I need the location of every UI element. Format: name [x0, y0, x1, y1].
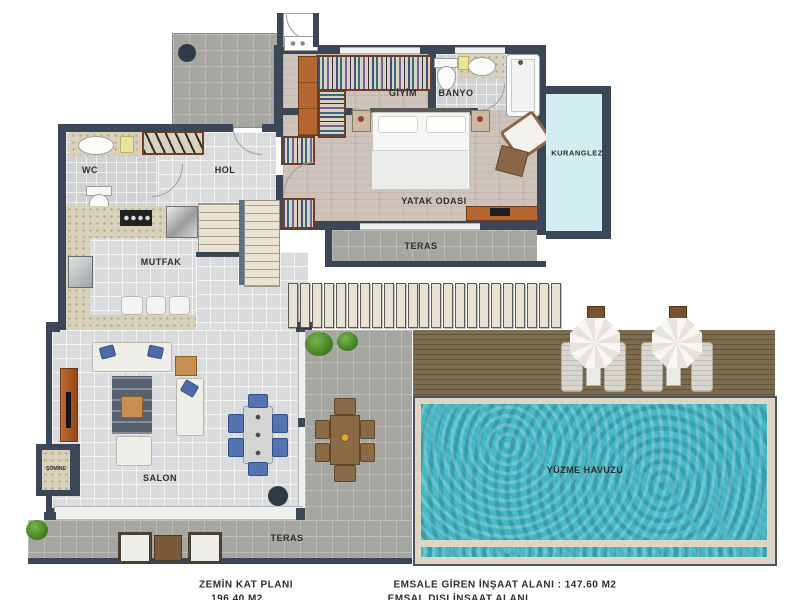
outdoor-chair-r1 — [360, 420, 375, 439]
label-banyo: BANYO — [438, 88, 473, 98]
bedroom-wardrobe-a — [281, 136, 315, 165]
teras-armchair-1 — [118, 532, 152, 564]
dining-chair-r2 — [272, 438, 288, 457]
dining-chair-l1 — [228, 414, 244, 433]
label-yatak-odasi: YATAK ODASI — [401, 196, 466, 206]
shoe-rack — [142, 131, 204, 155]
pergola-slat — [324, 283, 334, 328]
pool-overflow-channel — [421, 547, 767, 557]
window-banyo-top — [455, 47, 505, 54]
pergola-slat — [539, 283, 549, 328]
dining-chair-r1 — [272, 414, 288, 433]
kuranglez-wall-right — [602, 86, 611, 239]
label-teras-ust: TERAS — [404, 241, 437, 251]
floor-plan: WC HOL MUTFAK SALON GİYİM BANYO YATAK OD… — [0, 0, 800, 600]
bush-terrace-2 — [337, 332, 358, 351]
desk-laptop — [490, 208, 510, 216]
bush-bottom-left — [26, 520, 48, 540]
outdoor-chair-l2 — [315, 443, 330, 462]
dining-chair-l2 — [228, 438, 244, 457]
label-hol: HOL — [215, 165, 236, 175]
label-salon: SALON — [143, 473, 177, 483]
outdoor-chair-top — [334, 398, 356, 415]
pergola-slat — [384, 283, 394, 328]
label-somine: ŞÖMİNE — [46, 466, 66, 472]
footer-plan-area: 196.40 M2 — [211, 594, 263, 600]
porch-stub-right — [313, 13, 319, 47]
lamp-right — [477, 116, 483, 122]
pergola-slat — [491, 283, 501, 328]
pergola-slat — [419, 283, 429, 328]
pergola-slat — [515, 283, 525, 328]
umbrella-1-cap — [587, 306, 605, 319]
stair-flight-upper — [198, 203, 240, 254]
bedroom-wardrobe-b — [281, 198, 315, 229]
outdoor-table — [330, 415, 360, 465]
banyo-sink — [468, 57, 496, 76]
pergola-slat — [336, 283, 346, 328]
wc-sink — [78, 136, 114, 155]
outdoor-chair-l1 — [315, 420, 330, 439]
label-giyim: GİYİM — [389, 88, 417, 98]
dining-chair-bottom — [248, 462, 268, 476]
giyim-cabinet — [298, 56, 318, 136]
window-giyim-top — [340, 47, 420, 54]
teras-side-table — [154, 535, 182, 561]
plant-pot-salon — [268, 486, 288, 506]
tv-icon — [66, 392, 71, 428]
kuranglez-wall-top — [546, 86, 610, 94]
pergola-slat — [431, 283, 441, 328]
pergola-slat — [360, 283, 370, 328]
label-havuz: YÜZME HAVUZU — [547, 465, 624, 475]
lamp-left — [358, 116, 364, 122]
bar-stool-1 — [121, 296, 143, 315]
pergola-slat — [527, 283, 537, 328]
pergola-slat — [443, 283, 453, 328]
dining-table — [243, 406, 273, 464]
fridge-icon — [68, 256, 93, 288]
bar-stool-3 — [169, 296, 190, 315]
pergola — [288, 283, 566, 326]
kitchen-sink-unit — [166, 206, 198, 238]
bush-terrace-1 — [305, 332, 333, 356]
pergola-slat — [372, 283, 382, 328]
label-mutfak: MUTFAK — [141, 257, 182, 267]
teras-armchair-2 — [188, 532, 222, 564]
footer-plan-title: ZEMİN KAT PLANI — [199, 580, 293, 591]
pergola-slat — [455, 283, 465, 328]
umbrella-1-icon — [570, 318, 620, 368]
bathtub — [506, 54, 540, 117]
porch-stub-left — [277, 13, 283, 47]
bathtub-drain — [518, 60, 523, 65]
kuranglez-fill — [546, 94, 602, 231]
pergola-slat — [467, 283, 477, 328]
wardrobe-left — [318, 90, 346, 138]
wall-left-main — [58, 124, 66, 336]
bar-stool-2 — [146, 296, 166, 315]
coffee-table — [121, 396, 143, 418]
wc-soap — [120, 136, 134, 153]
window-teras-door — [360, 223, 480, 230]
pergola-slat — [300, 283, 310, 328]
outdoor-chair-r2 — [360, 443, 375, 462]
pergola-slat — [288, 283, 298, 328]
wall-hol-top-b — [262, 124, 276, 132]
pergola-slat — [312, 283, 322, 328]
side-table-wood — [175, 356, 197, 376]
kuranglez-wall-bottom — [546, 231, 611, 239]
wardrobe-top — [316, 55, 432, 91]
salon-window-bottom — [54, 506, 302, 520]
bed-blanket — [372, 150, 468, 189]
label-wc: WC — [82, 165, 98, 175]
pergola-slat — [408, 283, 418, 328]
umbrella-2-icon — [652, 318, 702, 368]
stove-icon — [120, 210, 152, 226]
label-teras-alt: TERAS — [270, 533, 303, 543]
bed-pillow-left — [378, 116, 418, 133]
bed-pillow-right — [426, 116, 466, 133]
teras-ust-wall-bottom — [325, 261, 546, 267]
pergola-slat — [551, 283, 561, 328]
banyo-soap — [458, 56, 469, 70]
pergola-slat — [479, 283, 489, 328]
footer-emsal-line2: EMSAL DIŞI İNŞAAT ALANI — [388, 594, 529, 600]
umbrella-2-cap — [669, 306, 687, 319]
footer-emsal-line1: EMSALE GİREN İNŞAAT ALANI : 147.60 M2 — [394, 580, 617, 591]
pergola-slat — [396, 283, 406, 328]
label-kuranglez: KURANGLEZ — [551, 149, 603, 158]
planter-circle-icon — [178, 44, 196, 62]
pergola-slat — [503, 283, 513, 328]
outdoor-chair-bottom — [334, 465, 356, 482]
salon-stub-tl — [46, 322, 60, 332]
armchair-salon — [116, 436, 152, 466]
dining-chair-top — [248, 394, 268, 408]
stair-rail-bottom — [196, 252, 240, 257]
stair-flight-lower — [244, 200, 280, 287]
pergola-slat — [348, 283, 358, 328]
